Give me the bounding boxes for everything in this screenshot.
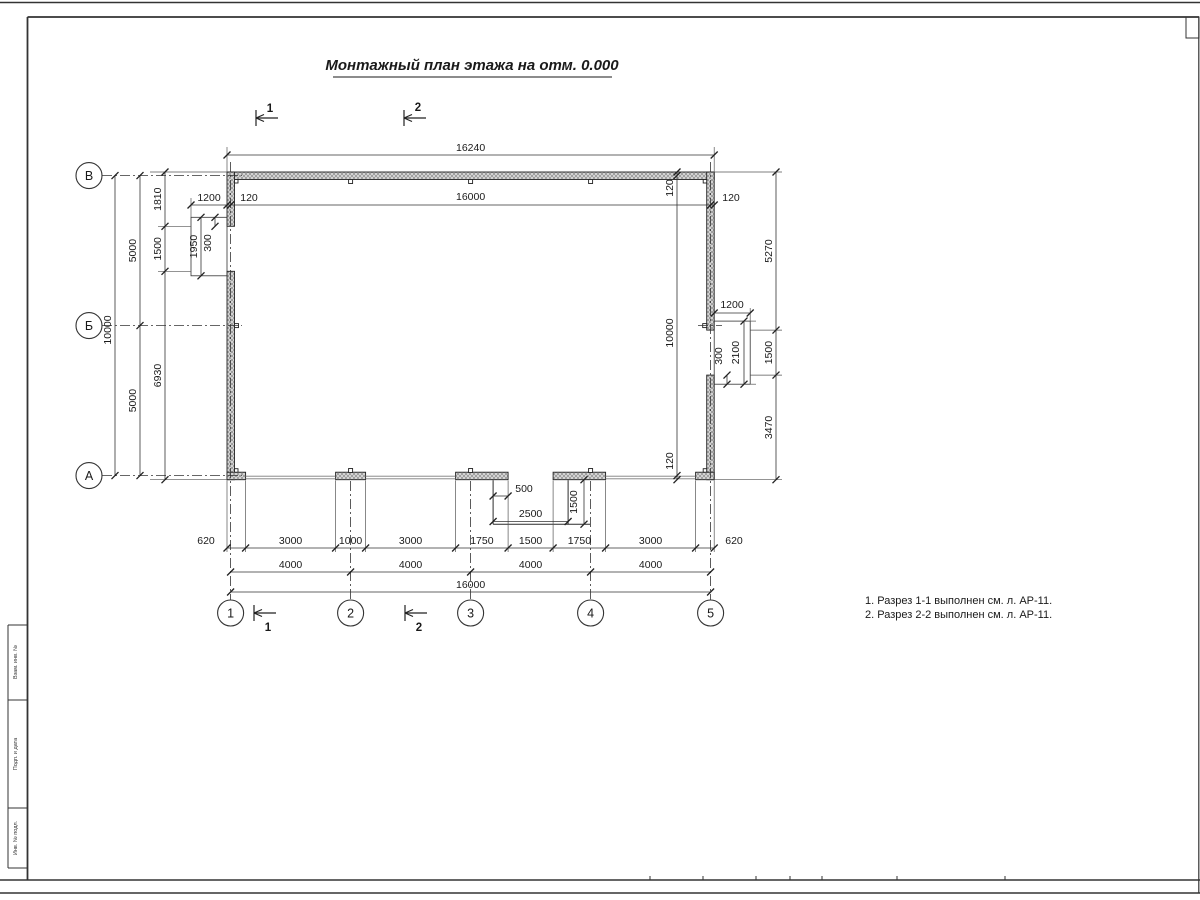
dim-right-inner-10000: 10000 (664, 318, 676, 347)
dim-left-niche-1950: 1950 (188, 235, 200, 259)
axis-col-4: 4 (578, 600, 604, 626)
axis-label: А (85, 469, 94, 483)
dim-bottom1-620r: 620 (725, 535, 743, 547)
page-title: Монтажный план этажа на отм. 0.000 (325, 57, 619, 74)
axis-row-A: А (76, 463, 102, 489)
section-marks: 1 2 1 2 (254, 102, 427, 634)
dim-left-1500: 1500 (152, 237, 164, 261)
frame-corner-box (1186, 17, 1199, 38)
dim-bottom2-4000a: 4000 (279, 559, 303, 571)
dim-porch-1500: 1500 (568, 490, 580, 514)
dim-right-niche-2100: 2100 (730, 341, 742, 365)
sheet-frame: Взам. инв. № Подп. и дата Инв. № подл. (0, 3, 1200, 894)
dim-bottom2-4000c: 4000 (519, 559, 543, 571)
dimension-texts: 16240 1200 120 16000 120 1810 1500 6930 … (102, 142, 775, 591)
stamp-label: Взам. инв. № (13, 645, 19, 679)
dim-bottom1-3000c: 3000 (639, 535, 663, 547)
section-label: 2 (415, 102, 421, 114)
drawing-sheet: Взам. инв. № Подп. и дата Инв. № подл. М… (0, 0, 1200, 900)
section-label: 1 (267, 103, 274, 115)
axis-label: Б (85, 319, 93, 333)
axis-row-B: В (76, 163, 102, 189)
note-line-2: 2. Разрез 2-2 выполнен см. л. АР-11. (865, 609, 1052, 621)
axis-label: 1 (227, 607, 234, 621)
dim-bottom1-1000: 1000 (339, 535, 363, 547)
floor-plan-drawing: Взам. инв. № Подп. и дата Инв. № подл. М… (0, 0, 1200, 900)
axis-col-3: 3 (458, 600, 484, 626)
dimension-ticks (112, 152, 780, 596)
axis-label: 2 (347, 607, 354, 621)
dim-bottom1-3000b: 3000 (399, 535, 423, 547)
dim-top-120-left: 120 (240, 192, 258, 204)
dim-overall-width: 16240 (456, 142, 485, 154)
dim-bottom2-4000b: 4000 (399, 559, 423, 571)
section-2-bottom: 2 (405, 605, 427, 634)
joint-marks (235, 180, 707, 473)
stamp-label: Инв. № подл. (13, 820, 19, 855)
stamp-label: Подп. и дата (13, 737, 19, 770)
dimension-lines (115, 155, 776, 592)
axis-label: 4 (587, 607, 594, 621)
section-1-bottom: 1 (254, 605, 276, 634)
dim-right-niche-300: 300 (713, 347, 725, 365)
dim-left-1810: 1810 (152, 187, 164, 211)
dim-right-1500: 1500 (763, 341, 775, 365)
dim-porch-500: 500 (515, 483, 533, 495)
dim-top-1200: 1200 (197, 192, 221, 204)
section-2-top: 2 (404, 102, 426, 126)
axis-label: В (85, 169, 93, 183)
axis-col-1: 1 (218, 600, 244, 626)
dim-bottom1-1750b: 1750 (568, 535, 592, 547)
axis-row-Bb: Б (76, 313, 102, 339)
dim-left-6930: 6930 (152, 364, 164, 388)
dim-left-5000-lower: 5000 (127, 389, 139, 413)
axis-col-2: 2 (338, 600, 364, 626)
axis-label: 5 (707, 607, 714, 621)
dim-bottom-16000: 16000 (456, 579, 485, 591)
axis-label: 3 (467, 607, 474, 621)
extension-lines (150, 147, 782, 552)
dim-top-16000: 16000 (456, 191, 485, 203)
dim-bottom1-620l: 620 (197, 535, 215, 547)
dim-left-niche-300: 300 (202, 234, 214, 252)
dim-left-10000: 10000 (102, 315, 114, 344)
dim-right-inner-120-bottom: 120 (664, 452, 676, 470)
dim-bottom1-1500: 1500 (519, 535, 543, 547)
section-1-top: 1 (256, 103, 278, 126)
axis-col-5: 5 (698, 600, 724, 626)
section-label: 2 (416, 622, 422, 634)
dim-porch-2500: 2500 (519, 508, 543, 520)
note-line-1: 1. Разрез 1-1 выполнен см. л. АР-11. (865, 595, 1052, 607)
dim-bottom2-4000d: 4000 (639, 559, 663, 571)
dim-right-5270: 5270 (763, 239, 775, 263)
dim-top-120-right: 120 (722, 192, 740, 204)
dim-bottom1-3000a: 3000 (279, 535, 303, 547)
dim-bottom1-1750a: 1750 (470, 535, 494, 547)
dim-left-5000-upper: 5000 (127, 239, 139, 263)
stamp-column: Взам. инв. № Подп. и дата Инв. № подл. (8, 625, 28, 868)
section-label: 1 (265, 622, 272, 634)
dim-right-niche-1200: 1200 (720, 299, 744, 311)
notes: 1. Разрез 1-1 выполнен см. л. АР-11. 2. … (865, 595, 1052, 621)
dim-right-3470: 3470 (763, 416, 775, 440)
dim-right-inner-120-top: 120 (664, 179, 676, 197)
axis-markers: В Б А 1 2 3 4 5 (76, 163, 724, 626)
